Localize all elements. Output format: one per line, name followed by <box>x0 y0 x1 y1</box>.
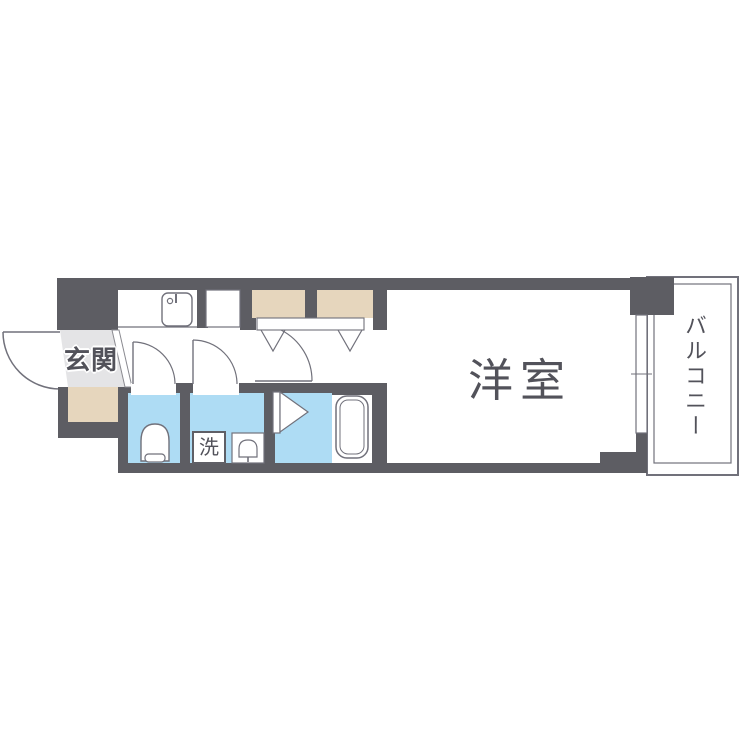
washbasin-icon <box>232 433 264 463</box>
refrigerator-space <box>206 290 240 327</box>
bathtub-icon <box>336 396 368 458</box>
western-room-label: 洋室 <box>415 344 625 409</box>
balcony-label: バルコニー <box>677 314 709 484</box>
washing-machine-space: 洗 <box>192 431 226 464</box>
floor-plan: 玄関 洋室 バルコニー 洗 <box>0 0 750 750</box>
toilet-icon <box>141 424 169 462</box>
kitchen-sink-icon <box>118 293 197 327</box>
closet <box>252 290 305 318</box>
interior-door-swings <box>133 330 312 384</box>
closet-folding-doors <box>257 318 364 351</box>
closet <box>317 290 373 318</box>
entrance-door-swing <box>3 332 60 389</box>
shoe-cabinet <box>68 387 118 422</box>
entrance-label: 玄関 <box>60 340 122 377</box>
